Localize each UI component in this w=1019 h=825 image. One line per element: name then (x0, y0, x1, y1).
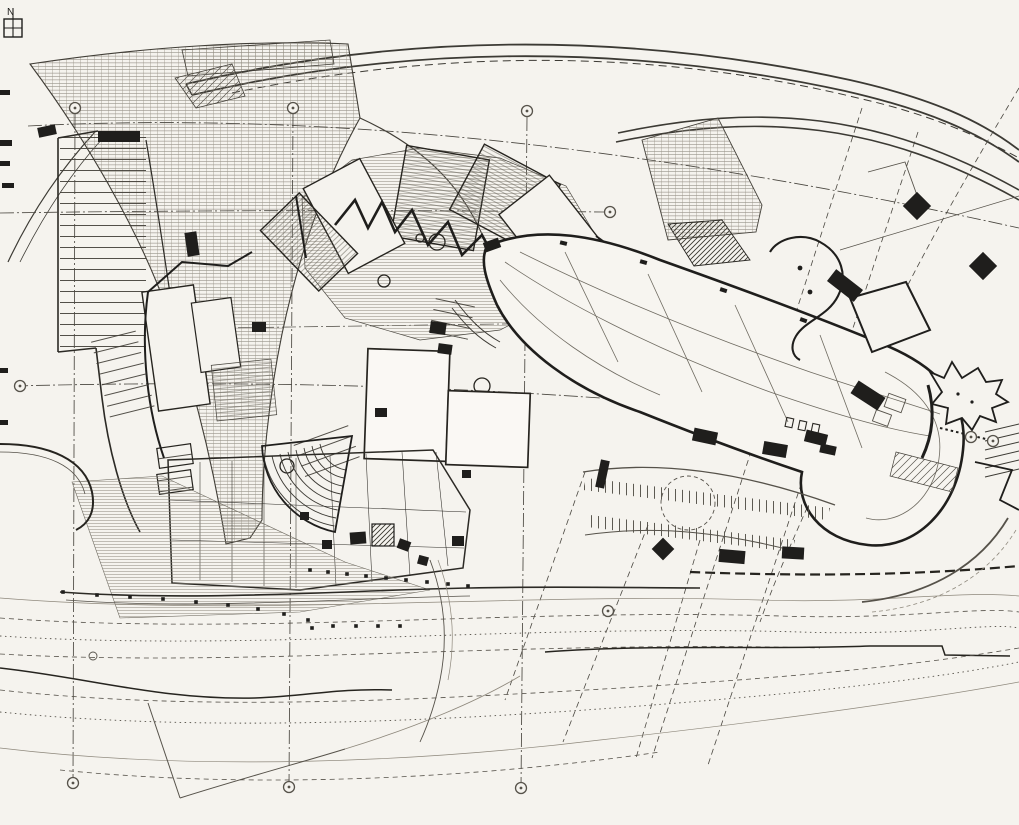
grid-marker-dot (72, 782, 75, 785)
ink-block (0, 420, 8, 425)
ink-block (375, 408, 387, 417)
ink-block (782, 546, 805, 559)
tree-dot (425, 580, 429, 584)
ink-block (350, 531, 367, 544)
tree-dot (282, 612, 286, 616)
ink-block (0, 90, 10, 95)
grid-marker-dot (74, 107, 77, 110)
ink-block (462, 470, 471, 478)
tree-dot (306, 618, 310, 622)
grid-marker-dot (19, 385, 22, 388)
tree-dot (345, 572, 349, 576)
tree-dot (398, 624, 402, 628)
tree-dot (326, 570, 330, 574)
ink-block (0, 140, 12, 146)
tree-dot (61, 590, 65, 594)
ink-block (452, 536, 464, 546)
grid-marker-dot (520, 787, 523, 790)
skylight-grid (372, 524, 394, 546)
grid-marker-dot (526, 110, 529, 113)
ink-block (0, 161, 10, 166)
ink-block (2, 183, 14, 188)
ink-block (252, 322, 266, 332)
tree-dot (466, 584, 470, 588)
ink-block (429, 321, 447, 335)
tree-dot (404, 578, 408, 582)
tree-dot (354, 624, 358, 628)
ink-block (0, 368, 8, 373)
site-plan-page: N (0, 0, 1019, 825)
tree-dot (161, 597, 165, 601)
tree-dot (308, 568, 312, 572)
tree-dot (95, 593, 99, 597)
grid-marker-dot (992, 440, 995, 443)
grid-marker-dot (970, 436, 973, 439)
tree-dot (226, 603, 230, 607)
grid-marker-dot (292, 107, 295, 110)
tree-dot (194, 600, 198, 604)
site-plan-drawing: N (0, 0, 1019, 825)
ink-block (322, 540, 332, 549)
grid-marker-dot (609, 211, 612, 214)
tree-dot (331, 624, 335, 628)
tree-dot (256, 607, 260, 611)
tree-dot (128, 595, 132, 599)
tree-dot (364, 574, 368, 578)
tree-dot (310, 626, 314, 630)
tree-dot (446, 582, 450, 586)
ink-block (98, 131, 140, 142)
ink-block (437, 343, 452, 355)
ink-block (300, 512, 309, 520)
tree-dot (376, 624, 380, 628)
ink-block (718, 549, 745, 564)
grid-marker-dot (607, 610, 610, 613)
tree-dot (384, 576, 388, 580)
terrace (211, 359, 277, 421)
grid-marker-dot (288, 786, 291, 789)
